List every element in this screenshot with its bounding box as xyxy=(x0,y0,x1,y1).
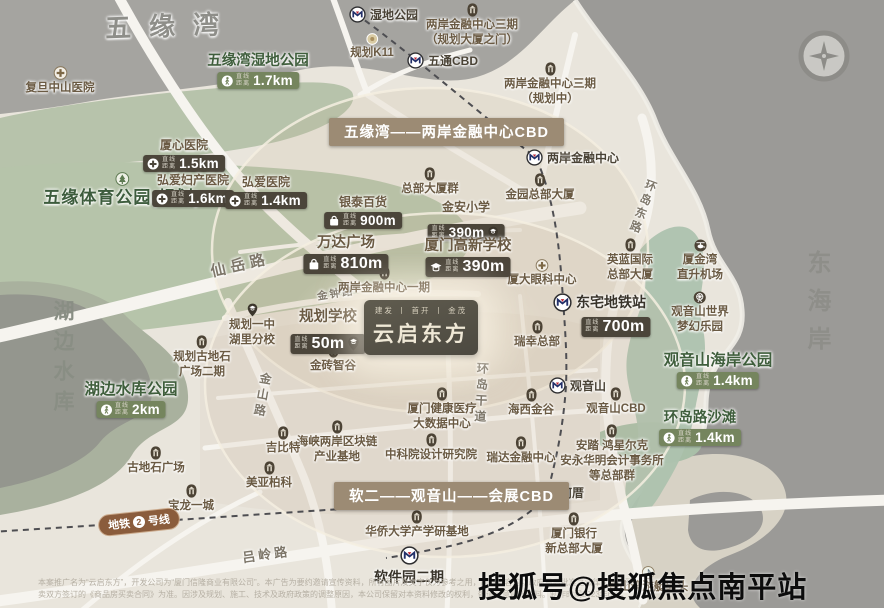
poi-gudishi-plaza: 古地石广场 xyxy=(127,446,185,476)
walking-icon xyxy=(100,404,112,416)
poi-health-big-data-center: 厦门健康医疗大数据中心 xyxy=(408,387,477,432)
area-label-wuyuan-bay: 五缘湾 xyxy=(104,4,237,46)
poi-hongai-hospital: 弘爱医院 直线距离 1.4km xyxy=(225,173,307,212)
graduation-cap-icon xyxy=(429,261,442,274)
line2-prefix: 地铁 xyxy=(107,515,131,533)
ferris-wheel-icon xyxy=(694,291,707,304)
poi-planned-no1-middle-school: 规划一中湖里分校 xyxy=(229,303,275,348)
poi-fudan-zhongshan-hospital: 复旦中山医院 xyxy=(26,66,95,96)
poi-label: 规划学校 xyxy=(291,305,366,326)
metro-icon xyxy=(553,293,572,312)
building-icon xyxy=(535,173,546,187)
poi-label: 厦心医院 xyxy=(143,136,225,153)
poi-xiamen-eye-center: 厦大眼科中心 xyxy=(508,259,577,288)
poi-planned-school: 规划学校 直线距离 50m xyxy=(291,305,366,354)
distance-value: 1.4km xyxy=(713,373,753,388)
metro-icon xyxy=(526,149,543,166)
poi-wanda-plaza: 万达广场 直线距离 810m xyxy=(303,231,388,276)
park-label: 观音山海岸公园 xyxy=(664,348,773,370)
banner-bottom-cbd: 软二——观音山——会展CBD xyxy=(334,482,569,510)
poi-island-road-beach: 环岛路沙滩 直线距离 1.4km xyxy=(659,406,741,449)
building-icon xyxy=(607,424,618,438)
building-icon xyxy=(332,420,343,434)
poi-fantasy-park: 观音山世界梦幻乐园 xyxy=(671,291,729,335)
hospital-icon xyxy=(536,259,549,272)
poi-gudishi-plaza-phase2: 规划古地石广场二期 xyxy=(173,335,231,380)
poi-huaqiao-university-base: 华侨大学产学研基地 xyxy=(365,510,469,540)
poi-label: 弘爱妇产医院 xyxy=(152,171,234,188)
building-icon xyxy=(425,167,436,181)
poi-finance-center-phase3-gate: 两岸金融中心三期（规划大厦之门） xyxy=(426,3,518,48)
distance-value: 390m xyxy=(462,258,504,276)
building-icon xyxy=(625,238,636,252)
poi-anta-headquarters-group: 安踏 鸿星尔克安永华明会计事务所等总部群 xyxy=(560,424,664,484)
hospital-icon xyxy=(229,195,241,207)
building-icon xyxy=(516,436,527,450)
building-icon xyxy=(610,387,621,401)
metro-station-wutong-cbd: 五通CBD xyxy=(407,52,478,69)
poi-label: 弘爱医院 xyxy=(225,173,307,190)
poi-heliport: 厦金湾直升机场 xyxy=(677,239,723,283)
poi-cas-design-institute: 中科院设计研究院 xyxy=(385,433,477,463)
metro-icon xyxy=(549,377,566,394)
building-icon xyxy=(437,387,448,401)
distance-value: 810m xyxy=(340,255,382,273)
metro-station-wetland-park: 湿地公园 xyxy=(349,6,418,23)
building-icon xyxy=(151,446,162,460)
distance-value: 2km xyxy=(132,402,160,417)
building-icon xyxy=(545,62,556,76)
distance-value: 1.4km xyxy=(695,430,735,445)
poi-wetland-park: 五缘湾湿地公园 直线距离 1.7km xyxy=(207,49,309,92)
metro-icon xyxy=(400,546,419,565)
poi-blockchain-base: 海峡两岸区块链产业基地 xyxy=(297,420,378,465)
distance-value: 1.4km xyxy=(261,193,301,208)
metro-icon xyxy=(407,52,424,69)
building-icon xyxy=(426,433,437,447)
metro-label: 两岸金融中心 xyxy=(547,149,619,166)
school-pin-icon xyxy=(247,303,258,317)
area-label-east-coast: 东海岸 xyxy=(800,250,835,364)
poi-g-bits: 吉比特 xyxy=(266,426,301,456)
project-brands: 建发 丨 首开 丨 金茂 xyxy=(368,305,474,316)
helicopter-icon xyxy=(694,239,707,252)
walking-icon xyxy=(681,375,693,387)
dongzhai-distance: 直线距离 700m xyxy=(581,311,650,337)
building-icon xyxy=(467,3,478,17)
park-label: 五缘湾湿地公园 xyxy=(207,49,309,70)
school-pin-icon xyxy=(347,336,359,351)
distance-value: 1.6km xyxy=(188,191,228,206)
building-icon xyxy=(532,320,543,334)
poi-hongai-maternity-hospital: 弘爱妇产医院 直线距离 1.6km xyxy=(152,171,234,210)
banner-top-cbd: 五缘湾——两岸金融中心CBD xyxy=(329,118,564,146)
metro-icon xyxy=(349,6,366,23)
poi-yinglan-international: 英蓝国际总部大厦 xyxy=(607,238,653,283)
park-label: 湖边水库公园 xyxy=(84,377,177,399)
building-icon xyxy=(264,461,275,475)
poi-xiaxin-hospital: 厦心医院 直线距离 1.5km xyxy=(143,136,225,175)
poi-label: 银泰百货 xyxy=(324,193,402,210)
walking-icon xyxy=(663,432,675,444)
shopping-bag-icon xyxy=(328,215,340,227)
poi-label: 金安小学 xyxy=(428,198,505,215)
poi-yintai-department-store: 银泰百货 直线距离 900m xyxy=(324,193,402,232)
poi-finance-center-phase3-planned: 两岸金融中心三期（规划中） xyxy=(504,62,596,107)
hospital-icon xyxy=(156,193,168,205)
metro-label: 湿地公园 xyxy=(370,6,418,23)
poi-ruida-finance-center: 瑞达金融中心 xyxy=(487,436,556,466)
hospital-icon xyxy=(53,66,67,80)
distance-value: 700m xyxy=(602,318,644,336)
badge-prefix: 直线 xyxy=(585,320,599,327)
location-map: 五缘湾 东海岸 湖边水库 五缘体育公园(规划) 五缘湾——两岸金融中心CBD 软… xyxy=(0,0,884,608)
building-icon xyxy=(569,512,580,526)
distance-value: 50m xyxy=(312,335,345,353)
poi-headquarters-cluster: 总部大厦群 xyxy=(401,167,459,197)
shopping-bag-icon xyxy=(307,258,320,271)
line2-number: 2 xyxy=(132,515,145,528)
landmark-dot-icon xyxy=(366,33,378,45)
metro-label: 东宅地铁站 xyxy=(576,292,646,312)
distance-value: 1.5km xyxy=(179,156,219,171)
metro-label: 五通CBD xyxy=(428,52,478,69)
building-icon xyxy=(197,335,208,349)
poi-xiamen-bank-headquarters: 厦门银行新总部大厦 xyxy=(545,512,603,557)
distance-value: 900m xyxy=(360,213,396,228)
metro-station-guanyinshan: 观音山 xyxy=(549,377,606,394)
poi-planned-k11: 规划K11 xyxy=(350,33,393,61)
walking-icon xyxy=(221,75,233,87)
metro-station-cross-strait-finance: 两岸金融中心 xyxy=(526,149,619,166)
building-icon xyxy=(526,388,537,402)
poi-jinyuan-headquarters: 金园总部大厦 xyxy=(506,173,575,203)
project-name: 云启东方 xyxy=(368,318,474,348)
building-icon xyxy=(278,426,289,440)
metro-station-dongzhai: 东宅地铁站 xyxy=(553,292,646,312)
area-label-lakeside-reservoir: 湖边水库 xyxy=(48,300,78,420)
watermark: 搜狐号@搜狐焦点南平站 xyxy=(478,564,807,606)
poi-xiamen-gaoxin-school: 厦门高新学校 直线距离 390m xyxy=(425,234,512,279)
badge-prefix: 距离 xyxy=(585,327,599,334)
poi-luckin-headquarters: 瑞幸总部 xyxy=(514,320,560,350)
distance-value: 1.7km xyxy=(253,73,293,88)
poi-reservoir-park: 湖边水库公园 直线距离 2km xyxy=(84,377,177,421)
poi-haixi-jingu: 海西金谷 xyxy=(508,388,554,418)
tree-icon xyxy=(115,172,129,186)
hospital-icon xyxy=(147,158,159,170)
metro-label: 观音山 xyxy=(570,377,606,394)
park-label: 环岛路沙滩 xyxy=(659,406,741,427)
poi-guanyinshan-coast-park: 观音山海岸公园 直线距离 1.4km xyxy=(664,348,773,392)
project-box: 建发 丨 首开 丨 金茂 云启东方 xyxy=(364,300,478,355)
poi-label: 万达广场 xyxy=(303,231,388,252)
building-icon xyxy=(412,510,423,524)
poi-label: 厦门高新学校 xyxy=(425,234,512,255)
poi-meiya-pico: 美亚柏科 xyxy=(246,461,292,491)
compass-icon xyxy=(801,33,847,79)
building-icon xyxy=(186,484,197,498)
line2-suffix: 号线 xyxy=(147,511,171,529)
